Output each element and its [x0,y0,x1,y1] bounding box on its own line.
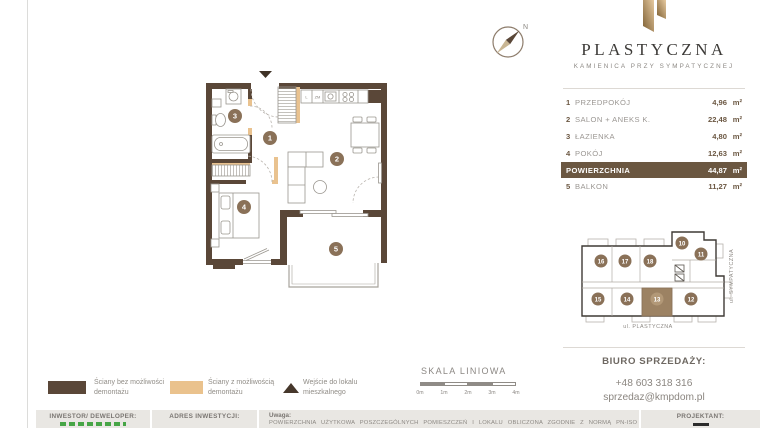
row-unit: m² [727,182,742,191]
row-unit: m² [727,132,742,141]
row-label: SALON + ANEKS K. [575,115,701,124]
unit-12: 12 [688,297,695,303]
notes-text: POWIERZCHNIA UŻYTKOWA POSZCZEGÓLNYCH POM… [269,420,639,426]
corner-sofa [288,152,323,203]
legend-entrance-triangle-icon [283,383,299,393]
bedroom-window [243,249,271,264]
row-unit: m² [727,149,742,158]
scalebar-segment [492,382,516,386]
compass-needle [495,29,522,56]
divider [563,347,745,348]
designer-logo-partial [693,423,709,426]
scalebar-tick: 1m [440,390,447,396]
dishwasher-label: ZM [315,95,321,100]
unit-11: 11 [698,252,705,258]
brand-subtitle: KAMIENICA PRZY SYMPATYCZNEJ [560,63,748,70]
divider [563,88,745,89]
radiator [379,163,382,183]
scalebar-tick: 2m [464,390,471,396]
row-value: 12,63 [701,149,727,158]
scalebar: 0m 1m 2m 3m 4m [420,382,516,386]
row-unit: m² [727,166,742,175]
sales-phone: +48 603 318 316 [560,378,748,389]
table-row: 5 BALKON 11,27 m² [561,178,747,195]
room-number-3: 3 [233,112,237,121]
unit-18: 18 [647,259,654,265]
scalebar-tick: 4m [512,390,519,396]
compass-north-label: N [523,24,528,31]
row-number: 2 [566,115,575,124]
legend-swatch-demountable-wall [170,381,203,394]
coffee-table [314,181,327,194]
entrance-arrow-icon [259,71,272,78]
scalebar-segment [444,382,468,386]
street-label-plastyczna: ul. PLASTYCZNA [623,324,673,330]
row-unit: m² [727,98,742,107]
unit-10: 10 [679,241,686,247]
row-unit: m² [727,115,742,124]
legend-swatch-structural-wall [48,381,86,394]
hall-wardrobe [278,87,296,123]
bathroom-sink [212,99,221,107]
scalebar-segment [468,382,492,386]
room-number-5: 5 [334,245,338,254]
room-area-table: 1 PRZEDPOKÓJ 4,96 m² 2 SALON + ANEKS K. … [561,94,747,195]
investor-logo-partial [60,422,126,426]
balcony-sliding-door [300,211,368,217]
sales-email: sprzedaz@kmpdom.pl [560,392,748,403]
scalebar-segment [420,382,444,386]
nightstand [211,184,219,192]
legend-label: Ściany z możliwością demontażu [208,378,280,398]
brand-logo-icon [637,0,671,36]
compass-rose: N [482,16,534,68]
apartment-floorplan: L ZM 1 2 3 4 5 [193,63,423,318]
legend-label: Wejście do lokalu mieszkalnego [303,378,369,398]
address-label: ADRES INWESTYCJI: [152,413,257,420]
row-value: 11,27 [701,182,727,191]
floorplan-card-page: L ZM 1 2 3 4 5 N PL [0,0,760,428]
footer-address-cell: ADRES INWESTYCJI: [152,410,257,428]
balcony-railing [289,263,378,287]
row-label: ŁAZIENKA [575,132,701,141]
unit-17: 17 [622,259,629,265]
row-value: 22,48 [701,115,727,124]
scalebar-title: SKALA LINIOWA [421,366,507,376]
brand-title: PLASTYCZNA [560,40,748,60]
unit-16: 16 [598,259,605,265]
bedroom-wardrobe [212,165,250,176]
room-number-2: 2 [335,155,339,164]
footer-investor-cell: INWESTOR/ DEWELOPER: [36,410,150,428]
unit-15: 15 [595,297,602,303]
footer-designer-cell: PROJEKTANT: [641,410,760,428]
row-number: 1 [566,98,575,107]
table-row: 3 ŁAZIENKA 4,80 m² [561,128,747,145]
sales-office-heading: BIURO SPRZEDAŻY: [560,356,748,367]
unit-14: 14 [624,297,631,303]
row-value: 4,80 [701,132,727,141]
row-label: BALKON [575,182,701,191]
building-floor-overview: 16 17 18 10 11 15 14 13 12 ul. PLASTYCZN… [578,228,758,332]
row-label: PRZEDPOKÓJ [575,98,701,107]
footer-notes-cell: Uwaga: POWIERZCHNIA UŻYTKOWA POSZCZEGÓLN… [259,410,639,428]
row-number: 3 [566,132,575,141]
scalebar-tick: 3m [488,390,495,396]
table-row: 4 POKÓJ 12,63 m² [561,145,747,162]
page-left-border [27,0,28,428]
room-number-1: 1 [268,134,272,143]
table-row-total: POWIERZCHNIA 44,87 m² [561,162,747,178]
row-label: POKÓJ [575,149,701,158]
notes-label: Uwaga: [269,412,639,419]
sales-office-block: BIURO SPRZEDAŻY: +48 603 318 316 sprzeda… [560,356,748,403]
dining-table [351,123,379,147]
unit-13-highlighted: 13 [654,297,661,303]
legend-label: Ściany bez możliwości demontażu [94,378,170,398]
table-row: 1 PRZEDPOKÓJ 4,96 m² [561,94,747,111]
row-value: 4,96 [701,98,727,107]
investor-label: INWESTOR/ DEWELOPER: [36,413,150,420]
table-row: 2 SALON + ANEKS K. 22,48 m² [561,111,747,128]
row-number: 5 [566,182,575,191]
row-value: 44,87 [701,166,727,175]
street-label-sympatyczna: ul. SYMPATYCZNA [729,249,735,303]
designer-label: PROJEKTANT: [641,413,760,420]
row-number: 4 [566,149,575,158]
brand-block: PLASTYCZNA KAMIENICA PRZY SYMPATYCZNEJ [560,0,748,70]
scalebar-tick: 0m [416,390,423,396]
nightstand [211,239,219,247]
bed [219,193,259,238]
row-label: POWIERZCHNIA [566,166,701,175]
